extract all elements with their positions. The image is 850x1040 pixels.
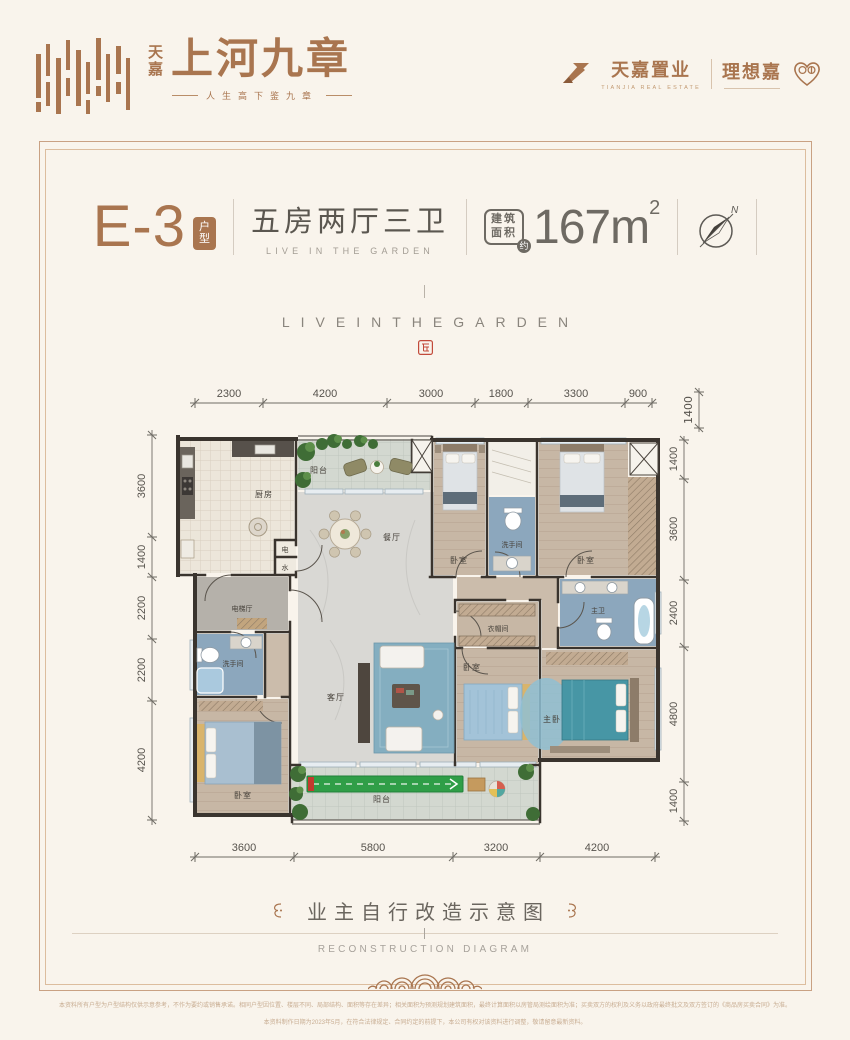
- footer-rule-tick: [424, 928, 425, 939]
- disclaimer-line-2: 本资料制作日期为2023年5月，在符合法律规定、合同约定的前提下，本公司有权对该…: [0, 1017, 850, 1026]
- dimension-top-right: 1400: [682, 388, 704, 432]
- svg-text:3000: 3000: [419, 388, 443, 400]
- svg-text:2400: 2400: [668, 601, 680, 625]
- svg-text:2300: 2300: [217, 388, 241, 400]
- svg-text:1800: 1800: [489, 388, 513, 400]
- dimension-right: 1400 3600 2400 4800 1400: [668, 436, 689, 826]
- disclaimer-line-1: 本资料所有户型为户型结构仅供示意参考，不作为要约或销售承诺。相同户型因位置、楼层…: [0, 1000, 850, 1009]
- floorplan-poster: { "brand": { "logo_cn_small": "天嘉", "log…: [0, 0, 850, 1040]
- svg-text:2200: 2200: [136, 658, 148, 682]
- cloud-ornament-icon: [368, 960, 482, 997]
- floorplan-drawing: 阳台 厨房 餐厅 卧室 洗手间 卧室 主卫 电梯厅 电 水 客厅 衣帽间 卧室 …: [0, 0, 850, 1040]
- label-closet: 衣帽间: [488, 624, 509, 633]
- footer-rule: [72, 933, 778, 934]
- dimension-bottom: 3600 5800 3200 4200: [190, 842, 660, 862]
- footer-title: 业主自行改造示意图: [300, 896, 550, 925]
- svg-text:4200: 4200: [136, 748, 148, 772]
- svg-text:1400: 1400: [682, 396, 695, 424]
- label-living: 客厅: [327, 692, 345, 702]
- label-elevator-hall: 电梯厅: [232, 604, 253, 613]
- label-washroom-top: 洗手间: [502, 540, 523, 549]
- label-bedroom-a: 卧室: [450, 555, 468, 565]
- svg-text:5800: 5800: [361, 842, 385, 854]
- svg-text:4800: 4800: [668, 702, 680, 726]
- svg-text:1400: 1400: [668, 789, 680, 813]
- svg-text:3300: 3300: [564, 388, 588, 400]
- svg-text:2200: 2200: [136, 596, 148, 620]
- label-balcony-top: 阳台: [310, 465, 328, 475]
- svg-text:3600: 3600: [232, 842, 256, 854]
- scroll-ornament-left-icon: [270, 902, 284, 919]
- bedroom-b-furniture: [560, 444, 604, 512]
- dimension-left: 3600 1400 2200 2200 4200: [136, 430, 157, 825]
- svg-text:3600: 3600: [136, 474, 148, 498]
- dimension-top: 2300 4200 3000 1800 3300 900: [190, 388, 657, 408]
- label-balcony-bottom: 阳台: [373, 794, 391, 804]
- svg-text:4200: 4200: [585, 842, 609, 854]
- label-kitchen: 厨房: [255, 489, 273, 499]
- label-bedroom-b: 卧室: [577, 555, 595, 565]
- footer-title-row: 业主自行改造示意图: [0, 896, 850, 925]
- scroll-ornament-right-icon: [566, 902, 580, 919]
- label-washroom-bl: 洗手间: [223, 659, 244, 668]
- svg-text:1400: 1400: [668, 447, 680, 471]
- svg-text:1400: 1400: [136, 545, 148, 569]
- label-dining: 餐厅: [383, 533, 401, 542]
- elevator-hall-fixtures: [237, 618, 267, 629]
- label-master-bedroom: 主卧: [543, 714, 561, 724]
- label-electric: 电: [282, 545, 289, 554]
- label-bedroom-mid: 卧室: [463, 662, 481, 672]
- svg-text:3200: 3200: [484, 842, 508, 854]
- svg-text:3600: 3600: [668, 517, 680, 541]
- area-approx-badge: 约: [517, 239, 531, 253]
- label-water: 水: [282, 563, 289, 572]
- svg-text:900: 900: [629, 388, 647, 400]
- svg-text:4200: 4200: [313, 388, 337, 400]
- label-bedroom-bl: 卧室: [234, 790, 252, 800]
- footer-subtitle: RECONSTRUCTION DIAGRAM: [0, 944, 850, 955]
- label-master-bath: 主卫: [591, 606, 605, 615]
